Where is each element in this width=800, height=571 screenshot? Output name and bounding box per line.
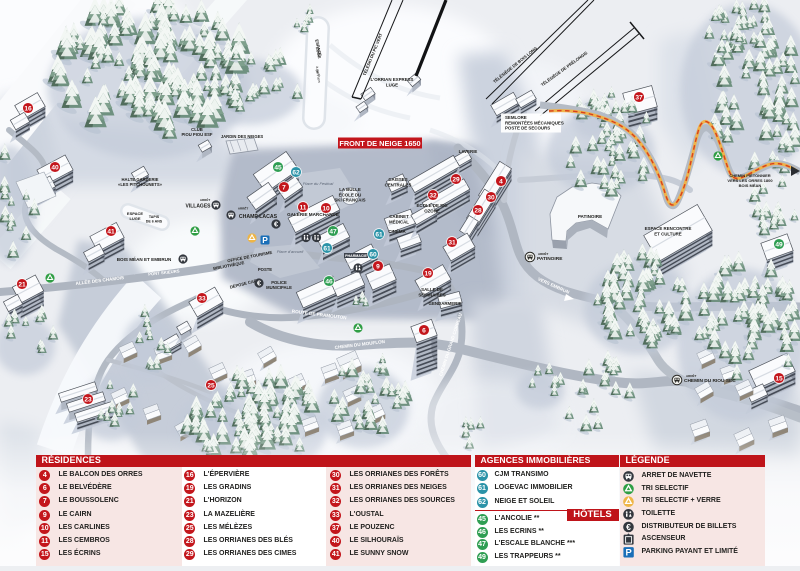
svg-text:LUGE: LUGE	[386, 82, 398, 87]
svg-text:L'ORRIAN EXPRESS: L'ORRIAN EXPRESS	[370, 77, 413, 82]
svg-text:REMONTÉES MÉCANIQUES: REMONTÉES MÉCANIQUES	[505, 120, 564, 125]
svg-text:CHAMP LACAS: CHAMP LACAS	[239, 214, 278, 220]
svg-text:LUGE: LUGE	[129, 216, 140, 221]
svg-text:6: 6	[422, 327, 426, 334]
svg-text:LA BULLE: LA BULLE	[339, 187, 361, 192]
svg-text:€: €	[274, 220, 278, 229]
svg-text:61: 61	[323, 245, 331, 252]
svg-text:62: 62	[292, 169, 300, 176]
svg-text:23: 23	[84, 396, 92, 403]
svg-text:11: 11	[300, 204, 307, 211]
svg-text:32: 32	[429, 192, 437, 199]
svg-text:€: €	[626, 522, 631, 532]
svg-text:ARRÊT: ARRÊT	[538, 251, 549, 256]
svg-text:P: P	[625, 547, 631, 558]
svg-text:25: 25	[207, 382, 215, 389]
svg-text:«LES PITCHOUNETS»: «LES PITCHOUNETS»	[118, 182, 163, 187]
svg-text:Place du Festival: Place du Festival	[303, 181, 334, 186]
svg-text:LAVERIE: LAVERIE	[459, 149, 478, 154]
svg-text:9: 9	[376, 263, 380, 270]
svg-text:SÉMINAIRES: SÉMINAIRES	[418, 292, 445, 297]
svg-text:SEMLORE: SEMLORE	[505, 115, 527, 120]
svg-text:ÉCOLE DU: ÉCOLE DU	[339, 192, 362, 197]
svg-text:21: 21	[18, 281, 26, 288]
svg-text:POSTE: POSTE	[258, 267, 272, 272]
svg-text:49: 49	[775, 241, 783, 248]
svg-text:7: 7	[282, 184, 286, 191]
svg-text:ET CULTURE: ET CULTURE	[654, 231, 682, 236]
svg-text:PATINOIRE: PATINOIRE	[578, 214, 602, 219]
svg-text:GENDARMERIE: GENDARMERIE	[429, 301, 462, 306]
svg-text:ÉCOLE DE SKI: ÉCOLE DE SKI	[417, 203, 448, 208]
svg-text:BOIS MÉAN ET EMBRUN: BOIS MÉAN ET EMBRUN	[117, 255, 172, 262]
svg-text:31: 31	[448, 239, 456, 246]
svg-text:CENTRALES: CENTRALES	[385, 182, 412, 187]
svg-text:30: 30	[487, 194, 495, 201]
svg-text:37: 37	[635, 94, 643, 101]
svg-text:41: 41	[107, 228, 115, 235]
svg-text:OZONE: OZONE	[424, 208, 440, 213]
svg-text:VILLAGES: VILLAGES	[185, 204, 211, 210]
svg-text:CHEMIN DU RIOU SEC: CHEMIN DU RIOU SEC	[684, 378, 736, 384]
svg-text:ARRÊT: ARRÊT	[238, 206, 249, 211]
svg-text:JARDIN DES NEIGES: JARDIN DES NEIGES	[221, 134, 264, 139]
svg-text:19: 19	[424, 270, 432, 277]
svg-text:Place d'accueil: Place d'accueil	[277, 249, 304, 254]
svg-text:4: 4	[499, 178, 503, 185]
svg-text:CAISSES: CAISSES	[388, 177, 407, 182]
svg-text:61: 61	[375, 231, 383, 238]
svg-text:ESPACE RENCONTRE: ESPACE RENCONTRE	[645, 226, 692, 231]
svg-text:DE 6 ANS: DE 6 ANS	[146, 220, 163, 224]
svg-text:47: 47	[329, 228, 337, 235]
svg-text:ARRÊT: ARRÊT	[200, 197, 211, 202]
svg-text:PATINOIRE: PATINOIRE	[537, 256, 563, 262]
svg-text:15: 15	[775, 375, 783, 382]
svg-text:28: 28	[474, 207, 482, 214]
svg-text:MÉDICAL: MÉDICAL	[389, 219, 409, 224]
svg-text:45: 45	[274, 164, 282, 171]
svg-text:33: 33	[198, 295, 206, 302]
svg-text:60: 60	[369, 251, 377, 258]
svg-text:SALLE DE: SALLE DE	[421, 287, 443, 292]
svg-text:40: 40	[51, 164, 59, 171]
svg-text:FRONT DE NEIGE 1650: FRONT DE NEIGE 1650	[339, 139, 420, 148]
svg-text:BOIS MÉAN: BOIS MÉAN	[739, 183, 762, 188]
svg-text:P: P	[262, 235, 268, 245]
svg-text:MUNICIPALE: MUNICIPALE	[266, 285, 292, 290]
svg-text:46: 46	[325, 278, 333, 285]
svg-text:10: 10	[322, 205, 330, 212]
svg-text:PHARMACIE: PHARMACIE	[345, 254, 367, 258]
svg-text:16: 16	[24, 105, 32, 112]
svg-text:GALERIE MARCHANDE: GALERIE MARCHANDE	[287, 212, 339, 217]
svg-text:ARRÊT: ARRÊT	[686, 373, 697, 378]
svg-text:SKI FRANÇAIS: SKI FRANÇAIS	[334, 198, 365, 203]
svg-text:TAPIS: TAPIS	[149, 215, 160, 219]
svg-text:29: 29	[452, 176, 460, 183]
svg-text:CABINET: CABINET	[389, 214, 409, 219]
svg-text:€: €	[257, 279, 261, 288]
svg-text:POSTE DE SECOURS: POSTE DE SECOURS	[505, 126, 550, 131]
svg-text:CINÉMA: CINÉMA	[388, 229, 406, 234]
svg-text:PIOU PIOU ESF: PIOU PIOU ESF	[182, 132, 213, 137]
